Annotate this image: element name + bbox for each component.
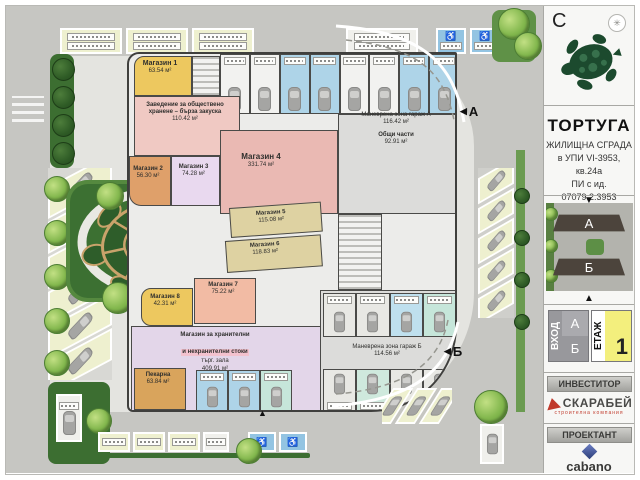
parking-slot [346,28,418,54]
car-icon [206,387,217,407]
parking-slot [126,28,188,54]
car-icon [486,199,506,223]
label-chip [327,402,352,410]
label-chip [59,402,78,410]
render-building-b: Б [553,255,625,279]
car-icon [486,289,506,313]
car-icon [318,87,331,111]
label-chip [133,33,180,41]
label-chip [133,42,180,50]
garage-cell [280,54,310,114]
label-shop1: Магазин 163.54 м² [134,60,186,76]
garage-row-b-top [323,293,456,337]
label-shop7: Магазин 775.22 м² [194,282,252,296]
tree-icon [86,408,112,434]
garage-cell [356,293,389,337]
entrance-option-a[interactable]: А [562,311,588,336]
parking-slot [56,394,82,442]
car-icon [434,312,445,332]
label-chip [427,296,452,304]
entrance-selector: ВХОД А Б [548,310,589,362]
scarabey-mark-icon [545,396,561,410]
cabano-mark-icon [581,444,597,460]
stair-core-b [338,214,382,290]
label-chip [67,33,114,41]
label-shop8: Магазин 842.31 м² [140,294,190,308]
label-chip [433,57,455,65]
entrance-b-marker: ◀Б [444,344,462,359]
label-chip [206,438,225,446]
accessible-parking-slot: ♿ [436,28,466,54]
left-arrow-icon: ◀ [444,346,451,357]
sidebar: С ✳ ТОРТУГА ЖИЛИЩНА СГРАДА в УПИ VI-3953… [543,6,634,473]
label-shop3: Магазин 374.28 м² [170,164,217,178]
car-icon [438,87,451,111]
tree-icon [514,188,530,204]
label-chip [440,42,462,50]
label-chip [394,296,419,304]
car-icon [486,229,506,253]
accessible-icon: ♿ [445,32,456,41]
label-chip [137,438,161,446]
angled-parking-bottom-right [382,386,452,426]
garage-cell [429,54,457,114]
tree-icon [474,390,508,424]
parking-slot [98,432,130,452]
up-arrow-icon[interactable]: ▲ [544,293,634,304]
car-icon [486,169,506,193]
label-chip [254,57,276,65]
garage-cell [260,370,292,412]
garage-cell [369,54,399,114]
label-chip [232,373,256,381]
tree-icon [44,308,70,334]
accessible-parking-slot: ♿ [279,432,307,452]
garage-cell [310,54,340,114]
label-chip [264,373,288,381]
label-chip [373,57,395,65]
label-chip [343,57,365,65]
garage-cell [399,54,429,114]
garage-cell [228,370,260,412]
tree-icon [52,142,75,165]
tree-icon [514,272,530,288]
car-icon [270,387,281,407]
label-chip [67,42,114,50]
tree-icon [514,230,530,246]
label-chip [199,42,246,50]
car-icon [63,411,76,435]
investor-heading: ИНВЕСТИТОР [547,376,632,392]
designer-heading: ПРОЕКТАНТ [547,427,632,443]
render-building-a: А [553,211,625,235]
parking-slot [168,432,200,452]
tree-icon [44,350,70,376]
car-icon [429,396,451,415]
aerial-render[interactable]: А Б [546,203,633,291]
label-shop4: Магазин 4331.74 м² [228,152,294,169]
floor-label: ЕТАЖ [592,311,605,361]
tree-icon [96,182,124,210]
tree-icon [52,114,75,137]
car-icon [378,87,391,111]
label-chip [403,57,425,65]
car-icon [348,87,361,111]
designer-logo: cabano [544,446,634,474]
parking-slot [60,28,122,54]
label-chip [354,33,409,41]
car-icon [382,396,403,415]
label-maneuver-a: Маневрена зона гараж А116.42 м² [338,112,454,126]
car-icon [288,87,301,111]
parking-slot [133,432,165,452]
entrance-a-marker: ◀А [460,104,478,119]
parking-slot [480,424,504,464]
label-market: Магазин за хранителнии нехранителни сток… [150,332,280,373]
label-chip [172,438,196,446]
tree-icon [52,86,75,109]
car-icon [367,312,378,332]
turtle-logo [558,20,622,98]
room-shop2[interactable] [129,156,171,206]
garage-cell [423,293,456,337]
car-icon [66,346,93,377]
label-chip [102,438,126,446]
tree-icon [52,58,75,81]
label-chip [284,57,306,65]
label-chip [327,296,352,304]
entrance-option-b[interactable]: Б [562,336,588,361]
garage-cell [323,293,356,337]
label-chip [199,33,246,41]
tree-icon [236,438,262,464]
car-icon [408,87,421,111]
label-maneuver-b: Маневрена зона гараж Б114.56 м² [320,344,454,358]
label-chip [224,57,246,65]
car-icon [334,312,345,332]
garage-cell [323,369,356,412]
label-chip [313,57,335,65]
garage-cell [196,370,228,412]
label-bakery: Пекарна63.84 м² [134,372,182,386]
garage-cell [340,54,370,114]
accessible-icon: ♿ [479,32,490,41]
label-chip [360,296,385,304]
parking-slot [192,28,254,54]
crosswalk [12,96,44,122]
label-common: Общи части92.91 м² [338,132,454,146]
label-fastfood: Заведение за общественохранене – бърза з… [136,102,234,124]
parking-slot [203,432,229,452]
car-icon [405,396,427,415]
up-arrow-icon: ▲ [258,408,267,418]
car-icon [486,434,497,454]
car-icon [367,374,378,394]
car-icon [334,374,345,394]
garage-row-a [220,54,457,114]
entrance-label: ВХОД [549,311,562,361]
floor-selector: ЕТАЖ 1 [591,310,632,362]
car-icon [258,87,271,111]
left-arrow-icon: ◀ [460,106,467,117]
project-title: ТОРТУГА [544,116,634,136]
floor-value[interactable]: 1 [605,311,631,361]
car-icon [486,259,506,283]
plan-sheet: ♿ ♿ ♿ [0,0,640,480]
car-icon [401,312,412,332]
investor-logo: СКАРАБЕЙ строителна компания [544,396,634,416]
garage-cells-market [196,370,292,412]
tree-icon [514,32,542,60]
label-chip [200,373,224,381]
accessible-icon: ♿ [287,438,298,447]
label-shop2: Магазин 256.30 м² [128,166,168,180]
garage-cell [250,54,280,114]
stair-core-a [192,56,220,96]
angled-parking-far-right [478,168,514,318]
garage-cell [390,293,423,337]
car-icon [238,387,249,407]
tree-icon [514,314,530,330]
maneuver-zone-a [338,114,457,214]
label-chip [354,42,409,50]
median-strip [96,453,310,458]
car-icon [66,311,93,342]
